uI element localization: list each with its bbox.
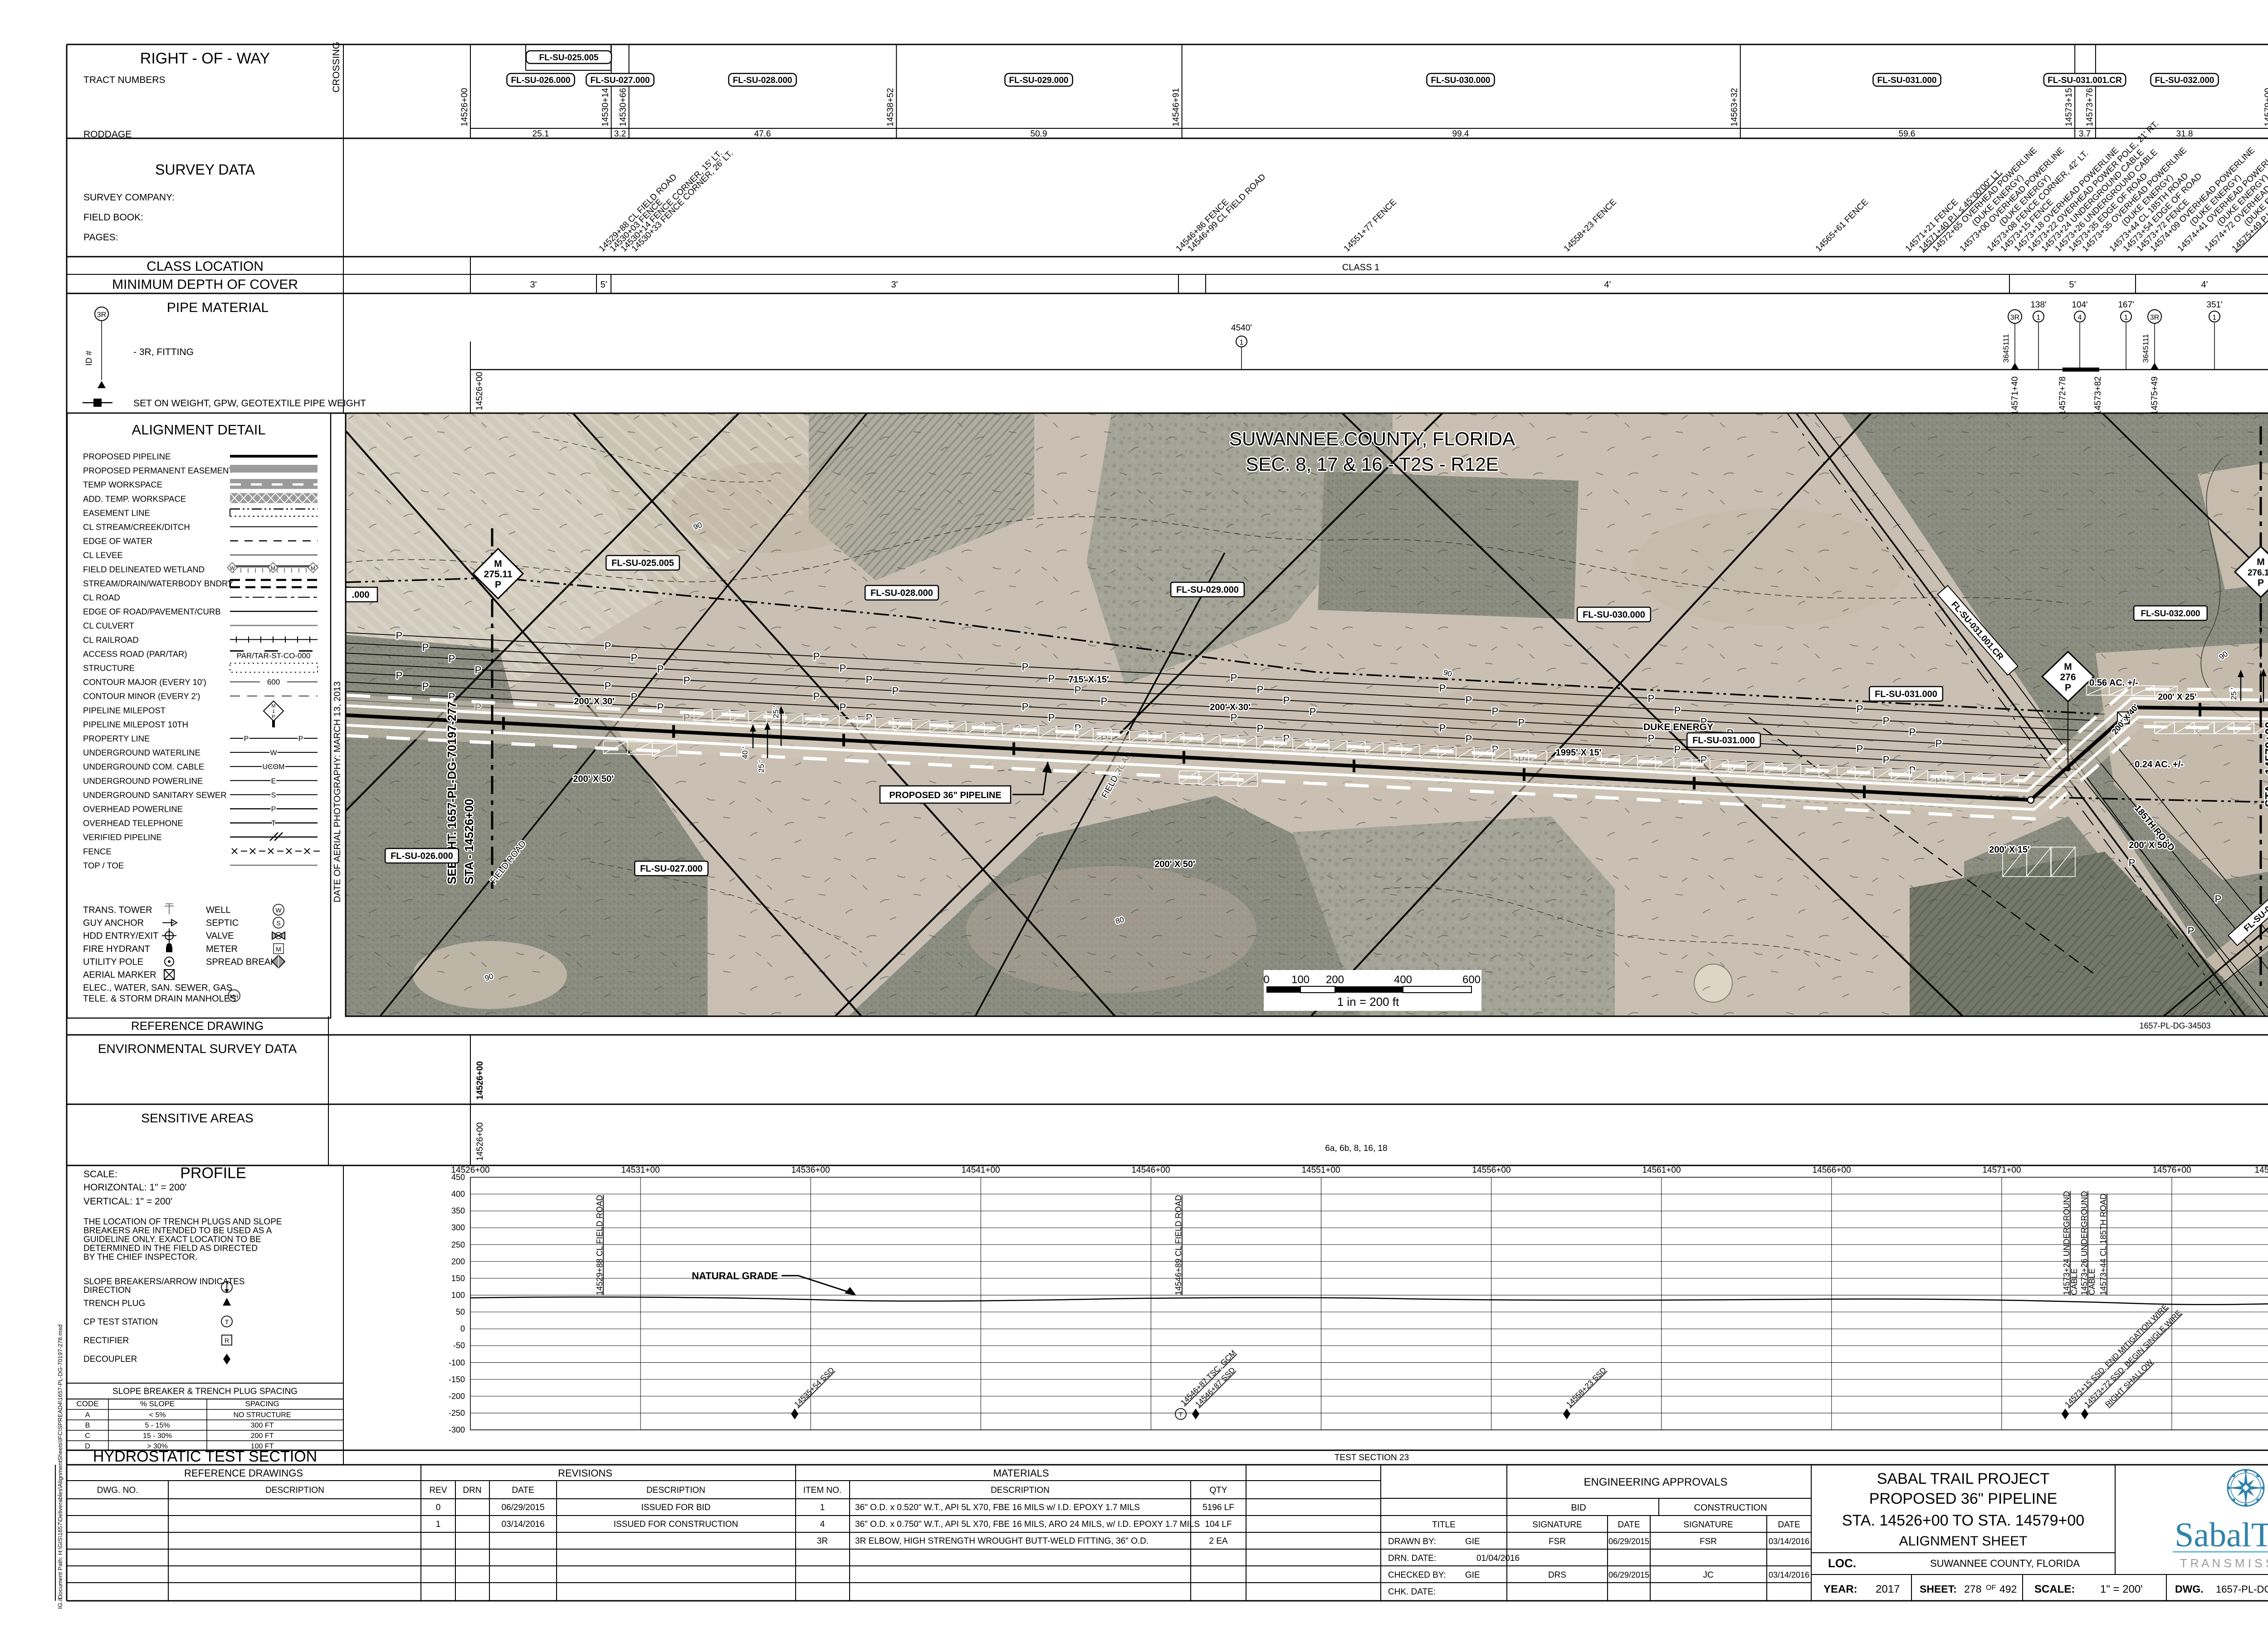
svg-text:SUWANNEE COUNTY, FLORIDA: SUWANNEE COUNTY, FLORIDA [1229,428,1515,449]
svg-text:TELE. & STORM DRAIN MANHOLES: TELE. & STORM DRAIN MANHOLES [83,994,236,1004]
svg-text:P: P [631,652,638,663]
svg-text:06/29/2015: 06/29/2015 [501,1503,544,1512]
svg-text:NATURAL GRADE: NATURAL GRADE [692,1270,778,1282]
svg-text:50: 50 [456,1307,465,1316]
svg-text:14546+00: 14546+00 [1131,1165,1170,1175]
svg-text:P: P [1439,682,1446,694]
svg-text:UNDERGROUND COM. CABLE: UNDERGROUND COM. CABLE [83,762,204,771]
svg-text:PROPOSED 36" PIPELINE: PROPOSED 36" PIPELINE [1869,1490,2058,1507]
svg-text:150: 150 [451,1274,465,1283]
svg-text:3645111: 3645111 [2141,334,2150,363]
svg-text:SET ON WEIGHT, GPW, GEOTEXTILE: SET ON WEIGHT, GPW, GEOTEXTILE PIPE WEIG… [133,398,366,409]
svg-text:CL ROAD: CL ROAD [83,593,120,602]
svg-text:TEMP WORKSPACE: TEMP WORKSPACE [83,480,162,489]
svg-text:CLASS 1: CLASS 1 [1342,263,1379,273]
svg-text:PROPOSED PIPELINE: PROPOSED PIPELINE [83,452,171,461]
svg-text:DESCRIPTION: DESCRIPTION [646,1486,705,1495]
svg-text:200 FT: 200 FT [251,1432,274,1440]
svg-text:B: B [85,1422,90,1429]
svg-text:-300: -300 [449,1425,465,1434]
svg-text:DESCRIPTION: DESCRIPTION [991,1486,1050,1495]
svg-text:UNDERGROUND POWERLINE: UNDERGROUND POWERLINE [83,776,203,785]
svg-text:P: P [1648,733,1655,744]
svg-text:SPREAD BREAK: SPREAD BREAK [206,957,277,967]
svg-text:25 ': 25 ' [757,760,766,773]
svg-text:3.7: 3.7 [2079,129,2091,139]
svg-text:ENVIRONMENTAL SURVEY DATA: ENVIRONMENTAL SURVEY DATA [98,1042,297,1056]
svg-text:P: P [2129,857,2136,868]
svg-text:GUIDELINE ONLY. EXACT LOCATIO: GUIDELINE ONLY. EXACT LOCATION TO BE [83,1235,261,1244]
svg-text:14526+00: 14526+00 [475,1122,485,1161]
svg-text:FENCE: FENCE [83,847,112,856]
svg-text:CONSTRUCTION: CONSTRUCTION [1694,1503,1767,1513]
svg-text:P: P [1909,726,1916,738]
svg-text:P: P [605,640,611,652]
svg-text:5 - 15%: 5 - 15% [145,1422,170,1429]
svg-text:MH: MH [230,994,239,1000]
svg-text:200: 200 [1326,974,1344,986]
svg-text:GIE: GIE [1465,1570,1480,1580]
svg-text:FL-SU-027.000: FL-SU-027.000 [640,864,703,874]
svg-text:14566+00: 14566+00 [1812,1165,1851,1175]
svg-text:14536+00: 14536+00 [791,1165,830,1175]
svg-text:P: P [1048,673,1055,684]
svg-text:03/14/2016: 03/14/2016 [1769,1570,1809,1579]
svg-text:THE LOCATION OF TRENCH PLUGS A: THE LOCATION OF TRENCH PLUGS AND SLOPE [83,1217,282,1227]
svg-text:M: M [2064,662,2072,672]
svg-text:NO STRUCTURE: NO STRUCTURE [233,1411,291,1419]
svg-text:25 ': 25 ' [772,706,780,718]
svg-text:LOC.: LOC. [1828,1556,1856,1570]
svg-text:14572+78: 14572+78 [2058,376,2068,415]
svg-text:14573+44 CL 185TH ROAD: 14573+44 CL 185TH ROAD [2099,1194,2108,1295]
svg-text:1657-PL-DG-34503: 1657-PL-DG-34503 [2139,1021,2210,1030]
svg-text:GUY ANCHOR: GUY ANCHOR [83,918,144,928]
svg-text:25.1: 25.1 [533,129,549,139]
svg-text:278: 278 [1964,1583,1981,1595]
svg-text:JC: JC [1703,1570,1713,1580]
svg-text:CABLE: CABLE [2087,1268,2097,1295]
svg-text:T: T [271,820,276,828]
svg-text:99.4: 99.4 [1452,129,1469,139]
svg-text:STA - 14579+00: STA - 14579+00 [2263,721,2268,807]
svg-text:M: M [276,946,281,953]
svg-text:P: P [449,653,455,664]
svg-text:P: P [1075,684,1081,696]
svg-text:DATE: DATE [1618,1520,1640,1530]
svg-text:-150: -150 [449,1375,465,1384]
svg-text:15 - 30%: 15 - 30% [143,1432,172,1440]
svg-text:200' X 30': 200' X 30' [1210,702,1251,712]
svg-text:01/04/2016: 01/04/2016 [1476,1554,1520,1563]
svg-text:SHEET:: SHEET: [1920,1583,1957,1595]
svg-text:UNDERGROUND WATERLINE: UNDERGROUND WATERLINE [83,748,200,757]
svg-text:VERIFIED PIPELINE: VERIFIED PIPELINE [83,833,162,842]
svg-text:P: P [244,735,249,743]
svg-text:03/14/2016: 03/14/2016 [501,1520,544,1529]
svg-text:14529+88 CL FIELD ROAD: 14529+88 CL FIELD ROAD [595,1195,604,1295]
svg-text:CLASS LOCATION: CLASS LOCATION [147,259,264,274]
svg-text:ITEM NO.: ITEM NO. [803,1486,841,1495]
svg-text:4: 4 [820,1520,825,1529]
svg-text:14551+00: 14551+00 [1301,1165,1340,1175]
svg-text:DRAWN BY:: DRAWN BY: [1388,1537,1436,1546]
svg-text:300: 300 [451,1223,465,1232]
svg-text:P: P [1439,722,1446,734]
svg-text:1: 1 [1240,339,1244,346]
svg-text:SENSITIVE AREAS: SENSITIVE AREAS [141,1111,253,1125]
svg-text:ALIGNMENT DETAIL: ALIGNMENT DETAIL [132,422,265,438]
svg-text:SabalTrail: SabalTrail [2175,1516,2268,1554]
svg-text:FL-SU-025.005: FL-SU-025.005 [539,53,599,63]
svg-text:DUKE ENERGY: DUKE ENERGY [1643,722,1713,732]
svg-text:E: E [271,777,276,785]
svg-text:P: P [1022,661,1029,673]
svg-text:P: P [396,670,403,681]
svg-text:104': 104' [2072,300,2087,310]
svg-text:1: 1 [436,1520,441,1529]
svg-text:HORIZONTAL: 1" = 200': HORIZONTAL: 1" = 200' [83,1182,187,1193]
svg-text:FSR: FSR [1700,1537,1717,1546]
svg-text:350: 350 [451,1206,465,1215]
svg-text:4': 4' [2201,280,2208,290]
svg-text:0: 0 [460,1324,465,1333]
svg-text:59.6: 59.6 [1899,129,1916,139]
svg-text:P: P [684,675,690,686]
svg-text:P: P [866,674,873,685]
svg-text:14526+00: 14526+00 [475,372,484,410]
svg-text:CL CULVERT: CL CULVERT [83,621,134,630]
svg-text:ENGINEERING APPROVALS: ENGINEERING APPROVALS [1584,1476,1728,1488]
svg-text:DATE: DATE [1778,1520,1800,1530]
svg-text:METER: METER [206,944,238,954]
svg-text:1" = 200': 1" = 200' [2100,1583,2143,1595]
svg-text:0.56 AC. +/-: 0.56 AC. +/- [2089,678,2138,688]
svg-text:200' X 50': 200' X 50' [2129,840,2170,850]
svg-text:A: A [85,1411,90,1419]
svg-text:PROFILE: PROFILE [180,1165,246,1182]
svg-text:AERIAL MARKER: AERIAL MARKER [83,970,156,980]
svg-text:P: P [605,680,611,692]
svg-text:300 FT: 300 FT [251,1422,274,1429]
svg-text:PROPOSED PERMANENT EASEMENT: PROPOSED PERMANENT EASEMENT [83,466,234,475]
svg-text:PIPE MATERIAL: PIPE MATERIAL [167,300,269,315]
svg-text:W: W [275,907,282,914]
svg-text:40 ': 40 ' [741,747,749,759]
svg-text:FL-SU-029.000: FL-SU-029.000 [1009,76,1069,85]
svg-text:DATE: DATE [512,1486,534,1495]
svg-text:36" O.D. x 0.750" W.T., API 5L: 36" O.D. x 0.750" W.T., API 5L X70, FBE … [855,1520,1200,1529]
svg-text:104 LF: 104 LF [1205,1520,1232,1529]
svg-text:FL-SU-027.000: FL-SU-027.000 [591,76,650,85]
svg-text:P: P [1466,733,1472,745]
svg-text:CABLE: CABLE [2070,1268,2079,1295]
svg-text:14530+66: 14530+66 [619,88,628,127]
svg-text:P: P [1310,706,1316,717]
svg-text:FL-SU-032.000: FL-SU-032.000 [2141,609,2200,619]
svg-text:IG.#: IG.# [57,1598,64,1609]
svg-text:400: 400 [451,1189,465,1199]
svg-text:P: P [1048,712,1055,723]
svg-text:3R ELBOW, HIGH STRENGTH WROUGH: 3R ELBOW, HIGH STRENGTH WROUGHT BUTT-WEL… [855,1536,1149,1546]
svg-text:< 5%: < 5% [149,1411,166,1419]
svg-text:200' X 15': 200' X 15' [1989,845,2030,855]
svg-text:14526+00: 14526+00 [475,1061,485,1100]
svg-text:3': 3' [530,280,537,290]
svg-text:C: C [85,1432,90,1440]
svg-text:DETERMINED IN THE FIELD AS DIR: DETERMINED IN THE FIELD AS DIRECTED [83,1244,258,1253]
svg-text:14538+52: 14538+52 [886,88,895,127]
svg-text:200' X 25': 200' X 25' [2158,692,2196,702]
svg-text:P: P [1674,705,1681,716]
svg-text:GIE: GIE [1465,1537,1480,1546]
svg-text:FL-SU-028.000: FL-SU-028.000 [733,76,792,85]
svg-text:1: 1 [2037,314,2041,322]
svg-text:0.24 AC. +/-: 0.24 AC. +/- [2135,760,2184,770]
svg-text:P: P [1883,715,1890,726]
svg-text:SPACING: SPACING [245,1399,279,1408]
svg-text:-100: -100 [449,1358,465,1367]
svg-text:14579+00: 14579+00 [2254,1165,2268,1175]
svg-text:47.6: 47.6 [754,129,771,139]
svg-text:06/29/2015: 06/29/2015 [1608,1570,1649,1579]
svg-text:P: P [1022,701,1029,712]
svg-text:P: P [2065,682,2071,693]
svg-text:PROPERTY LINE: PROPERTY LINE [83,734,150,743]
svg-text:FL-SU-026.000: FL-SU-026.000 [511,76,571,85]
svg-text:200' X 50': 200' X 50' [573,774,614,784]
svg-text:REFERENCE DRAWING: REFERENCE DRAWING [131,1019,264,1033]
svg-text:5196 LF: 5196 LF [1202,1503,1234,1512]
svg-text:FL-SU-031.000: FL-SU-031.000 [1875,689,1937,699]
svg-text:REVISIONS: REVISIONS [558,1467,612,1479]
svg-text:715' X 15': 715' X 15' [1068,675,1109,685]
svg-text:UTILITY POLE: UTILITY POLE [83,957,143,967]
svg-text:P: P [631,691,638,702]
svg-text:P: P [2188,925,2195,936]
svg-text:P: P [1883,754,1890,765]
svg-text:M: M [2257,557,2265,567]
svg-text:100: 100 [1291,974,1310,986]
svg-text:P: P [1648,693,1655,704]
svg-text:DESCRIPTION: DESCRIPTION [265,1486,324,1495]
svg-text:P: P [813,651,820,662]
svg-text:CODE: CODE [76,1399,98,1408]
svg-text:BY THE CHIEF INSPECTOR.: BY THE CHIEF INSPECTOR. [83,1253,197,1262]
svg-text:3R: 3R [2010,314,2019,322]
svg-text:P: P [422,642,429,653]
svg-text:ID #: ID # [84,351,93,366]
svg-text:T: T [225,1318,229,1326]
svg-text:P: P [495,580,501,590]
svg-text:0: 0 [436,1503,441,1512]
svg-text:DWG.: DWG. [2175,1583,2204,1595]
svg-text:RIGHT - OF - WAY: RIGHT - OF - WAY [140,50,270,67]
svg-text:DRS: DRS [1548,1570,1566,1580]
svg-text:14563+32: 14563+32 [1730,88,1740,127]
svg-text:P: P [892,685,899,697]
svg-text:STRUCTURE: STRUCTURE [83,663,135,673]
svg-text:3R: 3R [2150,314,2159,322]
svg-text:CONTOUR MAJOR (EVERY 10'): CONTOUR MAJOR (EVERY 10') [83,678,206,687]
svg-text:0: 0 [1263,974,1269,986]
svg-text:MINIMUM DEPTH OF COVER: MINIMUM DEPTH OF COVER [112,277,298,292]
svg-text:276: 276 [2060,672,2076,682]
svg-text:200' X 50': 200' X 50' [1154,859,1195,869]
svg-text:14575+49: 14575+49 [2150,376,2160,415]
svg-text:ELEC., WATER, SAN. SEWER, GAS: ELEC., WATER, SAN. SEWER, GAS [83,983,232,993]
svg-text:TRACT NUMBERS: TRACT NUMBERS [83,75,165,85]
svg-text:492: 492 [1999,1583,2017,1595]
svg-text:14573+76: 14573+76 [2085,88,2095,127]
svg-text:1657-PL-DG-70197-278: 1657-PL-DG-70197-278 [2216,1584,2268,1595]
svg-text:4540': 4540' [1231,323,1252,333]
svg-text:167': 167' [2118,300,2134,310]
svg-text:EASEMENT LINE: EASEMENT LINE [83,508,150,517]
svg-text:FIELD DELINEATED WETLAND: FIELD DELINEATED WETLAND [83,565,205,574]
svg-text:P: P [1492,706,1499,717]
svg-text:ISSUED FOR CONSTRUCTION: ISSUED FOR CONSTRUCTION [614,1520,738,1529]
svg-text:DECOUPLER: DECOUPLER [83,1355,137,1364]
svg-text:14526+00: 14526+00 [451,1165,489,1175]
svg-text:P: P [475,664,482,676]
svg-text:CHK. DATE:: CHK. DATE: [1388,1587,1436,1597]
svg-text:CP TEST STATION: CP TEST STATION [83,1317,158,1327]
svg-text:P: P [1101,696,1108,707]
svg-text:REFERENCE DRAWINGS: REFERENCE DRAWINGS [184,1467,303,1479]
svg-text:WELL: WELL [206,905,230,915]
svg-text:R: R [225,1337,229,1344]
svg-text:250: 250 [451,1240,465,1249]
svg-text:P: P [840,663,846,674]
svg-text:FL-SU-025.005: FL-SU-025.005 [611,558,674,568]
svg-text:P: P [396,630,403,641]
svg-text:SIGNATURE: SIGNATURE [1683,1520,1733,1530]
svg-text:1: 1 [272,709,275,714]
svg-text:1995' X 15': 1995' X 15' [1556,748,1602,758]
svg-text:-50: -50 [453,1341,465,1350]
svg-text:STREAM/DRAIN/WATERBODY BNDRY: STREAM/DRAIN/WATERBODY BNDRY [83,579,233,588]
svg-text:OVERHEAD TELEPHONE: OVERHEAD TELEPHONE [83,819,183,828]
svg-text:M: M [494,559,502,569]
svg-text:14546+91: 14546+91 [1172,88,1181,127]
svg-text:SURVEY DATA: SURVEY DATA [155,161,255,178]
svg-text:5': 5' [2069,280,2076,290]
svg-text:S: S [271,791,276,799]
svg-text:FL-SU-031.000: FL-SU-031.000 [1877,76,1937,85]
svg-text:ADD. TEMP. WORKSPACE: ADD. TEMP. WORKSPACE [83,494,186,503]
svg-text:SABAL TRAIL PROJECT: SABAL TRAIL PROJECT [1877,1470,2049,1487]
svg-text:ALIGNMENT SHEET: ALIGNMENT SHEET [1899,1534,2028,1549]
svg-text:3R: 3R [97,311,106,319]
svg-text:ACCESS ROAD (PAR/TAR): ACCESS ROAD (PAR/TAR) [83,649,187,658]
svg-text:CL RAILROAD: CL RAILROAD [83,635,139,644]
svg-text:DWG. NO.: DWG. NO. [97,1486,138,1495]
svg-text:ISSUED FOR BID: ISSUED FOR BID [641,1503,710,1512]
svg-text:TOP / TOE: TOP / TOE [83,861,124,870]
svg-text:PIPELINE MILEPOST 10TH: PIPELINE MILEPOST 10TH [83,720,188,729]
svg-text:CONTOUR MINOR (EVERY 2'): CONTOUR MINOR (EVERY 2') [83,692,200,701]
svg-text:W: W [270,749,277,757]
svg-text:OF: OF [1986,1584,1996,1592]
svg-text:-250: -250 [449,1409,465,1418]
svg-text:SLOPE BREAKER & TRENCH PLUG SP: SLOPE BREAKER & TRENCH PLUG SPACING [112,1387,298,1396]
svg-text:FL-SU-029.000: FL-SU-029.000 [1176,585,1239,595]
svg-text:600: 600 [1462,974,1481,986]
svg-text:RODDAGE: RODDAGE [83,129,132,140]
svg-text:14571+40: 14571+40 [2010,376,2020,415]
svg-text:14573+82: 14573+82 [2093,376,2103,415]
svg-text:CROSSING: CROSSING [331,42,342,93]
svg-text:YEAR:: YEAR: [1823,1583,1857,1595]
svg-text:6a, 6b, 8, 16, 18: 6a, 6b, 8, 16, 18 [1325,1144,1387,1153]
svg-text:.000: .000 [352,590,370,600]
svg-text:1: 1 [2124,314,2128,322]
svg-text:SEPTIC: SEPTIC [206,918,239,928]
svg-text:BID: BID [1571,1503,1586,1513]
svg-text:P: P [657,663,664,675]
svg-text:- 3R, FITTING: - 3R, FITTING [133,347,194,357]
svg-text:T: T [1179,1411,1183,1418]
svg-text:SCALE:: SCALE: [83,1169,117,1180]
svg-text:1: 1 [820,1503,825,1512]
svg-text:2017: 2017 [1876,1583,1900,1595]
svg-text:DRN. DATE:: DRN. DATE: [1388,1554,1436,1563]
svg-text:P: P [422,681,429,692]
svg-text:FL-SU-031.000: FL-SU-031.000 [1692,736,1755,746]
svg-text:VERTICAL: 1" = 200': VERTICAL: 1" = 200' [83,1196,172,1207]
svg-text:FIRE HYDRANT: FIRE HYDRANT [83,944,150,954]
svg-text:P: P [2215,893,2222,905]
svg-text:275.11: 275.11 [484,569,512,580]
svg-text:200: 200 [451,1257,465,1266]
svg-text:D: D [85,1443,90,1450]
svg-text:REV: REV [429,1486,447,1495]
svg-text:SLOPE BREAKERS/ARROW INDICATES: SLOPE BREAKERS/ARROW INDICATES [83,1277,244,1287]
svg-text:CL LEVEE: CL LEVEE [83,551,123,560]
svg-text:PAR/TAR-ST-CO-000: PAR/TAR-ST-CO-000 [237,651,311,660]
svg-text:FL-SU-026.000: FL-SU-026.000 [391,851,453,861]
svg-text:138': 138' [2030,300,2046,310]
svg-text:P: P [1466,694,1472,706]
svg-text:P: P [1518,717,1525,728]
svg-text:FSR: FSR [1549,1537,1566,1546]
svg-text:600: 600 [267,678,280,687]
svg-text:P: P [840,702,846,713]
svg-text:14526+00: 14526+00 [460,88,469,127]
svg-text:Document Path: H:\GIS\1657\Del: Document Path: H:\GIS\1657\Deliverables\… [57,1324,64,1599]
svg-text:SIGNATURE: SIGNATURE [1532,1520,1582,1530]
svg-text:FL-SU-031.001.CR: FL-SU-031.001.CR [2048,76,2122,85]
svg-text:RECTIFIER: RECTIFIER [83,1336,129,1345]
svg-text:3.2: 3.2 [614,129,626,139]
svg-text:50.9: 50.9 [1031,129,1047,139]
svg-text:FL-SU-030.000: FL-SU-030.000 [1583,610,1645,620]
svg-text:1: 1 [2213,314,2217,322]
svg-text:14561+00: 14561+00 [1642,1165,1681,1175]
svg-text:PAGES:: PAGES: [83,232,118,243]
svg-text:QTY: QTY [1209,1486,1227,1495]
svg-text:DRN: DRN [463,1486,481,1495]
svg-text:STA - 14526+00: STA - 14526+00 [462,799,476,884]
svg-text:14530+14: 14530+14 [601,88,611,127]
svg-text:31.8: 31.8 [2176,129,2193,139]
svg-text:TEST SECTION 23: TEST SECTION 23 [1334,1453,1409,1462]
svg-text:HYDROSTATIC TEST SECTION: HYDROSTATIC TEST SECTION [93,1448,317,1465]
svg-text:UNDERGROUND SANITARY SEWER: UNDERGROUND SANITARY SEWER [83,790,227,799]
svg-text:200' X 30': 200' X 30' [574,697,615,707]
svg-text:25 ': 25 ' [2229,688,2238,700]
